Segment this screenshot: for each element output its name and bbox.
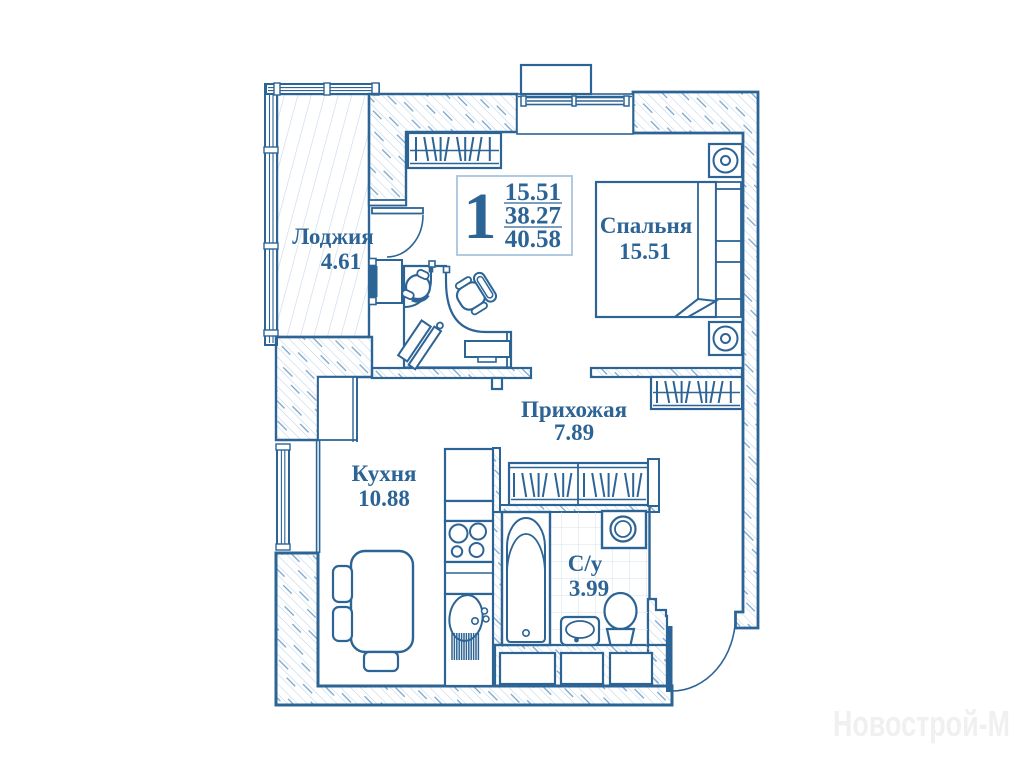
svg-text:40.58: 40.58 — [505, 226, 561, 253]
svg-text:7.89: 7.89 — [554, 420, 594, 445]
svg-text:1: 1 — [464, 180, 497, 253]
svg-text:4.61: 4.61 — [321, 249, 361, 274]
svg-text:С/у: С/у — [568, 551, 603, 576]
svg-text:15.51: 15.51 — [619, 239, 671, 264]
svg-text:10.88: 10.88 — [358, 486, 410, 511]
svg-text:Прихожая: Прихожая — [521, 397, 627, 422]
svg-text:Новострой-М: Новострой-М — [833, 703, 1010, 744]
svg-text:Кухня: Кухня — [352, 461, 417, 486]
svg-text:3.99: 3.99 — [569, 576, 609, 601]
svg-text:Лоджия: Лоджия — [292, 224, 373, 249]
svg-text:Спальня: Спальня — [600, 213, 692, 238]
